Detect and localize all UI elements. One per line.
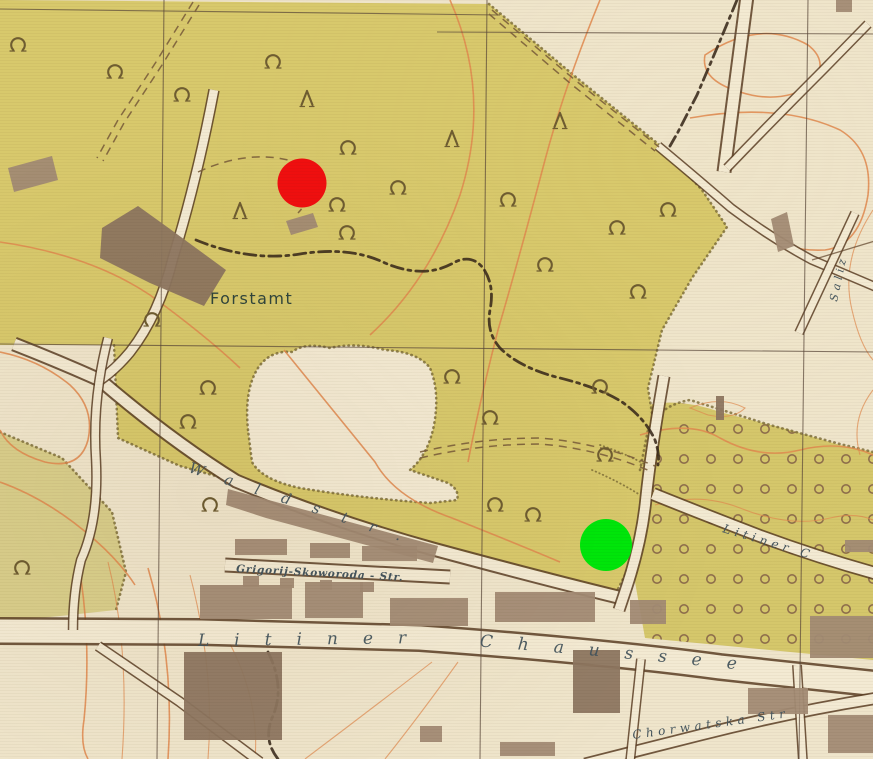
red-marker[interactable] (278, 159, 327, 208)
map-canvas: Forstamt Waldstr. Grigorij-Skoworoda - S… (0, 0, 873, 759)
forest-clearing (247, 345, 457, 503)
label-forstamt: Forstamt (210, 289, 293, 308)
green-marker[interactable] (580, 519, 632, 571)
map-stage: Forstamt Waldstr. Grigorij-Skoworoda - S… (0, 0, 873, 759)
